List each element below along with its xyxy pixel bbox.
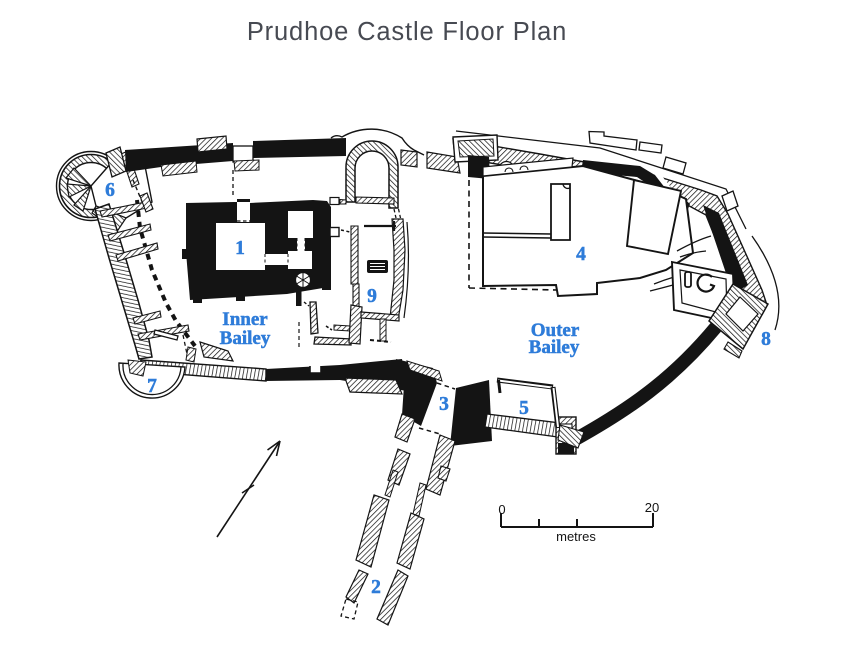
svg-text:Inner: Inner [222,309,268,330]
svg-text:2: 2 [371,577,381,598]
svg-text:Bailey: Bailey [220,328,271,349]
svg-text:20: 20 [645,500,659,515]
svg-text:0: 0 [498,502,505,517]
svg-text:1: 1 [235,238,245,259]
svg-text:4: 4 [576,244,586,265]
svg-text:metres: metres [556,529,596,544]
svg-text:9: 9 [367,286,377,307]
svg-text:3: 3 [439,394,449,415]
svg-text:7: 7 [147,376,157,397]
svg-text:6: 6 [105,180,115,201]
svg-text:8: 8 [761,329,771,350]
svg-text:5: 5 [519,398,529,419]
svg-text:Bailey: Bailey [529,337,580,358]
